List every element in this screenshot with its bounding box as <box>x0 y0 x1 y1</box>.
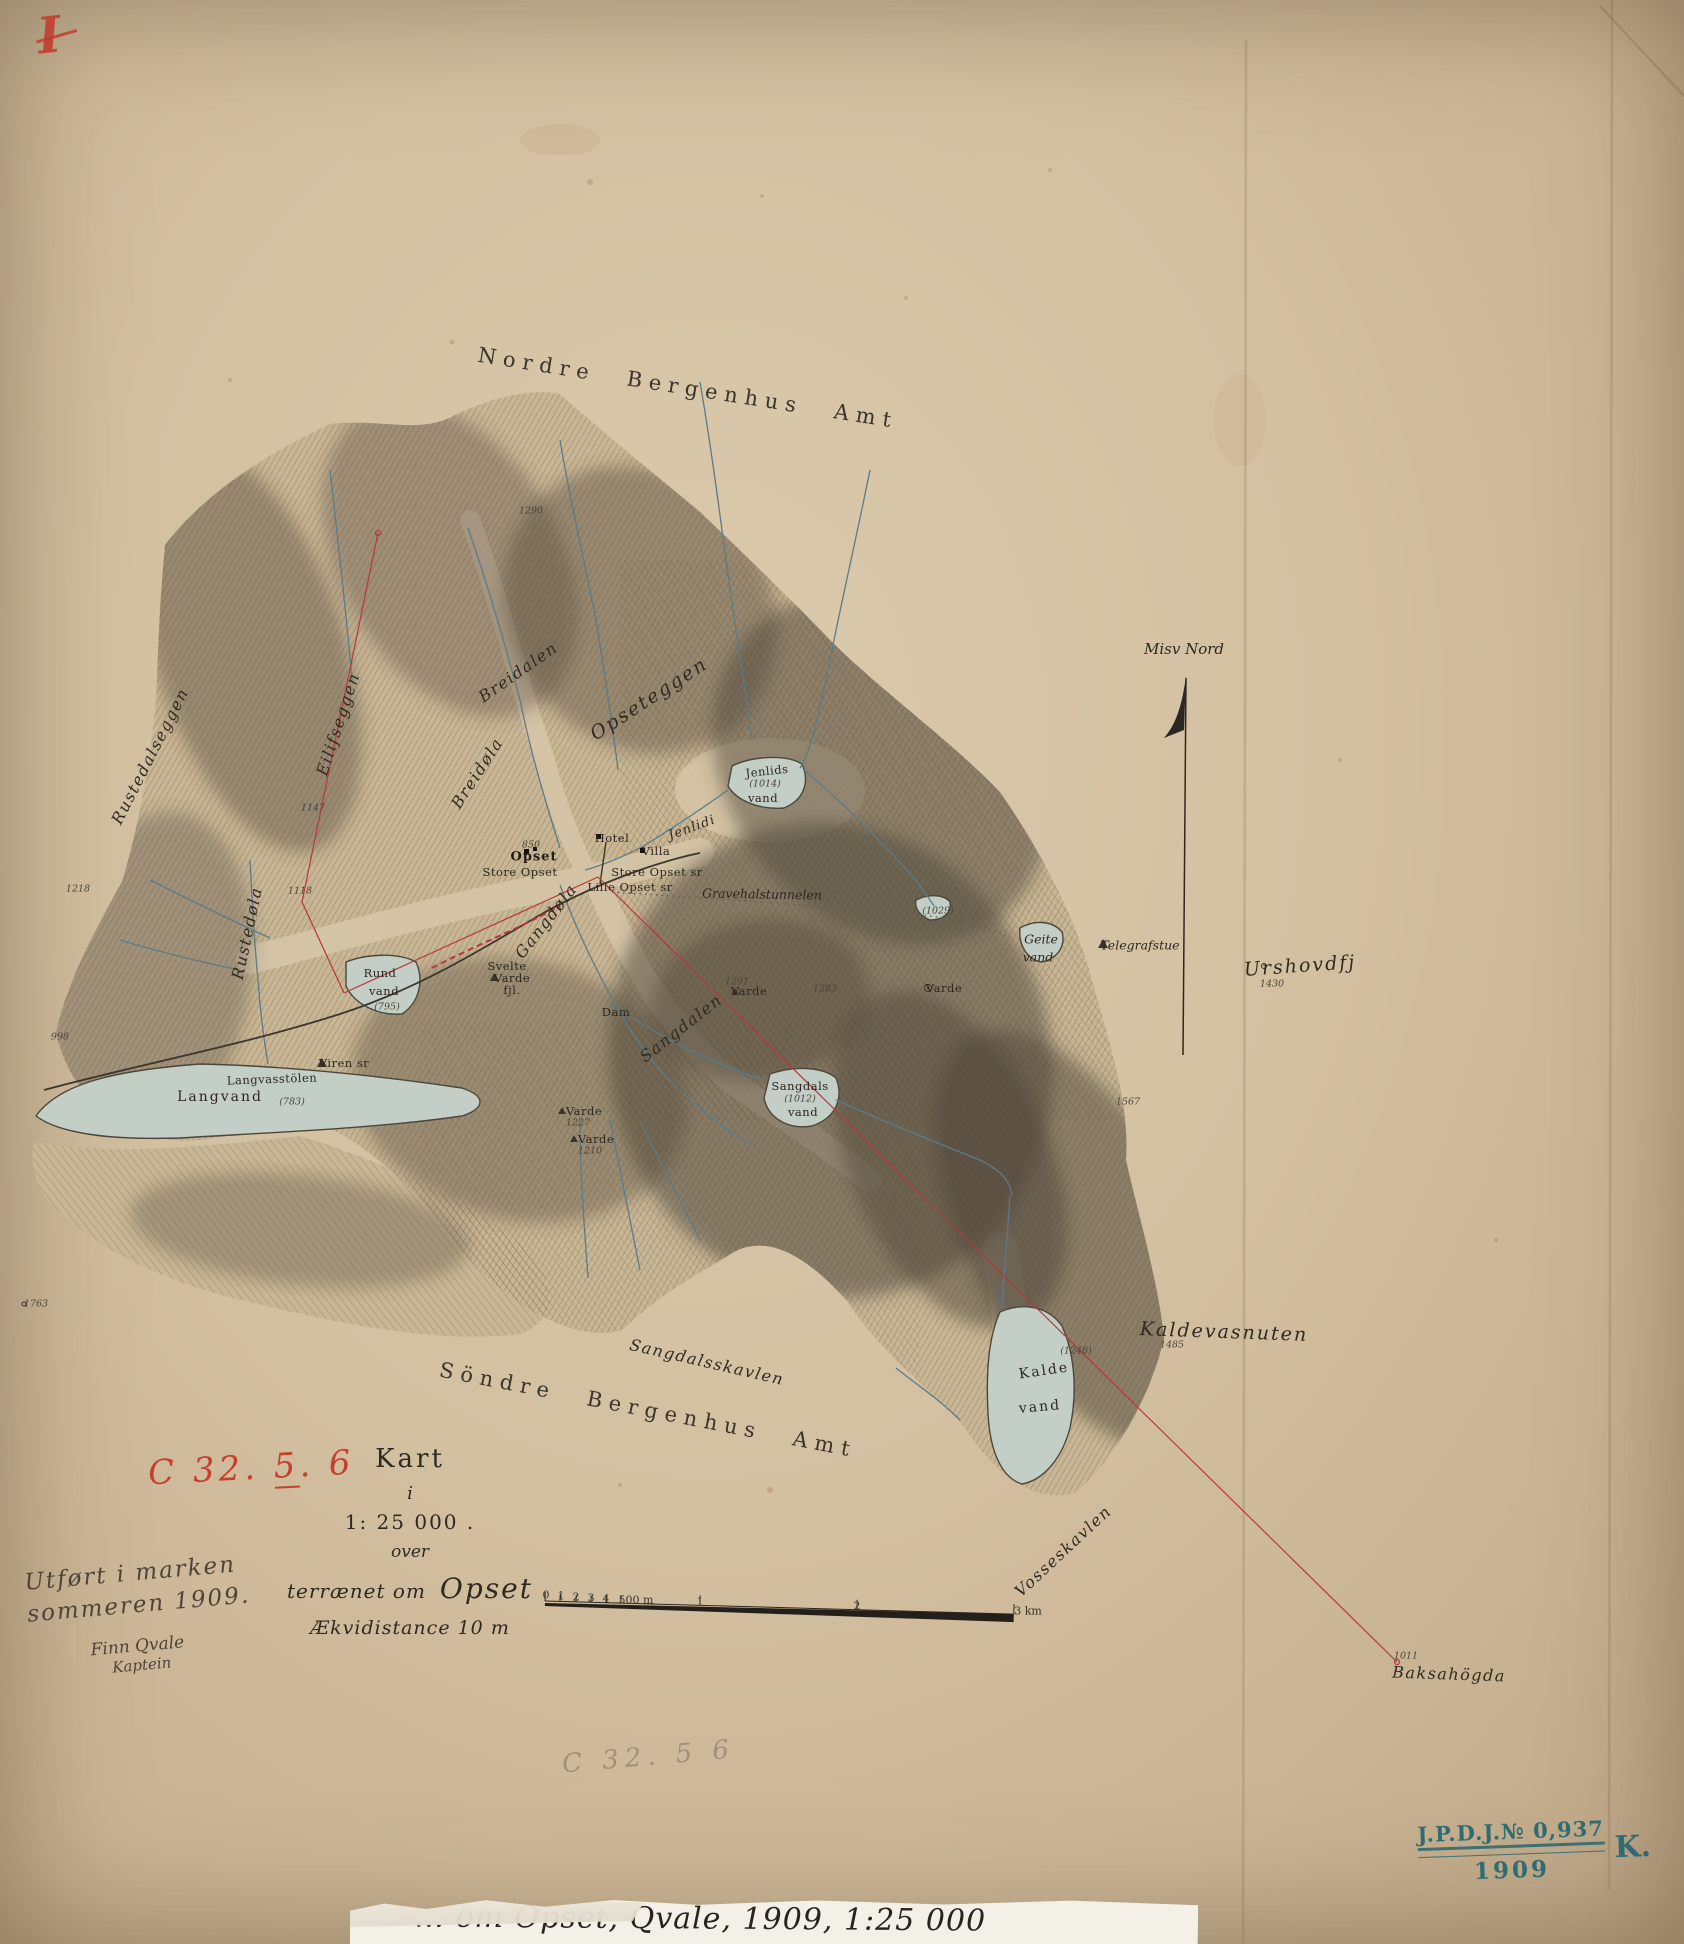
map-label: Rund <box>364 966 397 980</box>
map-label: 1227 <box>566 1118 590 1129</box>
map-label: 1011 <box>1394 1651 1418 1662</box>
map-label: (1248) <box>1060 1346 1092 1357</box>
map-label: (783) <box>279 1097 305 1108</box>
title-scale: 1: 25 000 . <box>255 1510 565 1534</box>
title-i: i <box>255 1483 565 1504</box>
surveyor-note: Utført i marken sommeren 1909. Finn Qval… <box>23 1550 256 1683</box>
map-label: (795) <box>374 1002 400 1013</box>
map-label: vand <box>748 791 778 805</box>
map-label: 1485 <box>1160 1340 1184 1351</box>
title-over: over <box>255 1542 565 1562</box>
map-label: Geite <box>1024 932 1058 947</box>
map-label: vand <box>1023 950 1054 965</box>
title-kart: Kart <box>255 1444 565 1474</box>
terrain-hachures <box>22 358 1285 1496</box>
sheet-number-mark: I <box>34 1 93 76</box>
archive-stamp: J.P.D.J.№ 0,937 1909 K. <box>1417 1814 1652 1887</box>
map-sheet: Nordre Bergenhus AmtSöndre Bergenhus Amt… <box>0 0 1684 1944</box>
map-label: Baksahögda <box>1392 1663 1506 1686</box>
title-subject: terrænet omOpset <box>255 1572 565 1605</box>
map-label: 1218 <box>66 884 90 895</box>
map-label: Varde <box>566 1104 602 1118</box>
map-label: 1147 <box>301 803 325 814</box>
scale-bar <box>545 1591 1014 1622</box>
map-label: 3 <box>588 1592 595 1605</box>
map-label: Viren sr <box>319 1056 370 1070</box>
title-equidistance: Ækvidistance 10 m <box>255 1617 565 1639</box>
map-label: 998 <box>51 1032 69 1043</box>
map-label: Lille Opset sr <box>587 880 672 894</box>
map-label: 1763 <box>24 1299 48 1310</box>
map-label: Varde <box>731 984 767 998</box>
map-label: 1567 <box>1116 1097 1140 1108</box>
map-label: (1014) <box>749 779 781 790</box>
map-label: Varde <box>578 1132 614 1146</box>
map-label: Opset <box>510 850 557 865</box>
map-label: Misv Nord <box>1144 640 1224 658</box>
map-label: (1012) <box>784 1094 816 1105</box>
map-label: Hotel <box>595 831 630 845</box>
map-label: Gravehalstunnelen <box>702 885 822 902</box>
map-label: Store Opset <box>483 865 558 879</box>
map-label: 3 km <box>1014 1605 1042 1618</box>
map-label: Store Opset sr <box>611 865 703 879</box>
map-label: 2 <box>854 1600 861 1613</box>
map-label: 1118 <box>288 886 312 897</box>
map-label: 1290 <box>519 506 543 517</box>
map-label: vand <box>788 1105 818 1119</box>
map-label: fjl. <box>503 983 520 997</box>
map-label: 500 m <box>619 1594 654 1607</box>
map-label: Telegrafstue <box>1100 938 1179 953</box>
map-label: Langvand <box>177 1089 263 1105</box>
stamp-fraction: J.P.D.J.№ 0,937 1909 <box>1417 1816 1606 1887</box>
map-label: Dam <box>602 1005 630 1019</box>
map-label: 2 <box>573 1591 580 1604</box>
north-arrow-icon <box>1164 676 1186 1055</box>
map-label: 1210 <box>578 1146 602 1157</box>
map-label: 1283 <box>813 984 837 995</box>
map-label: (1029) <box>922 906 954 917</box>
map-label: 1430 <box>1260 979 1284 990</box>
map-label: Varde <box>926 981 962 995</box>
map-label: Villa <box>642 844 671 858</box>
stamp-suffix: K. <box>1614 1829 1652 1865</box>
title-block: Kart i 1: 25 000 . over terrænet omOpset… <box>255 1444 565 1639</box>
sheet-number-text: I <box>34 4 63 65</box>
map-label: 4 <box>603 1593 610 1606</box>
map-label: 1 <box>697 1596 704 1609</box>
map-label: vand <box>369 984 399 998</box>
map-label: Sangdals <box>771 1079 828 1093</box>
